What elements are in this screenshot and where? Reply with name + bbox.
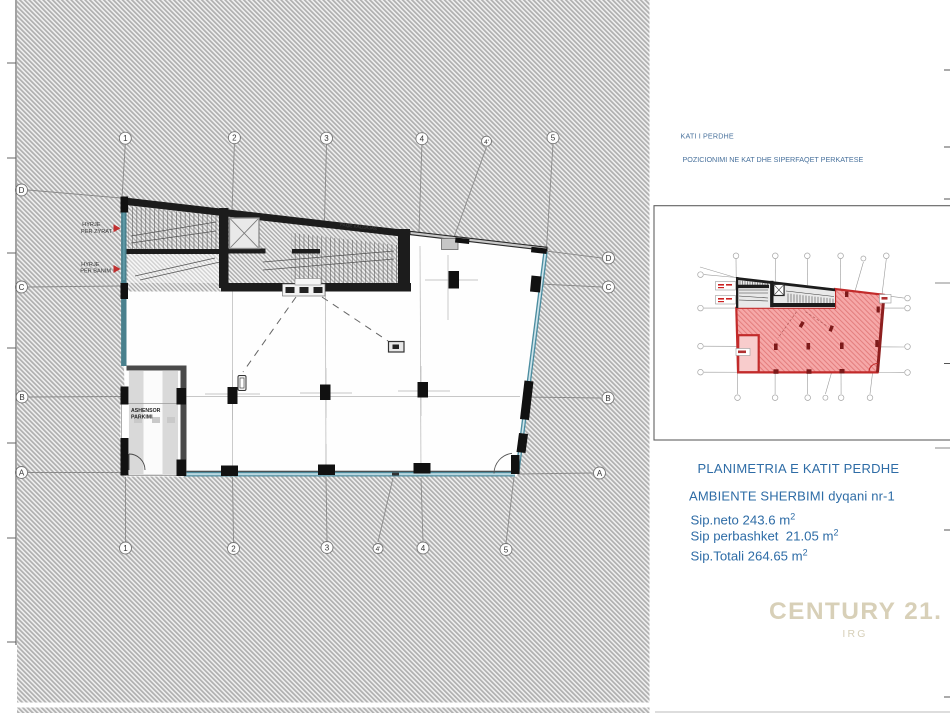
svg-text:PLANIMETRIA E KATIT PERDHE: PLANIMETRIA E KATIT PERDHE	[698, 461, 900, 476]
svg-text:Sip.neto 243.6 m2: Sip.neto 243.6 m2	[691, 512, 796, 528]
svg-text:4': 4'	[376, 546, 381, 553]
svg-text:ASHENSOR: ASHENSOR	[131, 408, 161, 414]
svg-text:5: 5	[504, 546, 509, 555]
svg-text:PER ZYRAT: PER ZYRAT	[81, 229, 113, 235]
svg-text:B: B	[19, 393, 24, 402]
svg-text:1: 1	[123, 134, 128, 143]
svg-text:A: A	[19, 469, 25, 478]
svg-text:4': 4'	[484, 139, 489, 146]
svg-text:Sip.Totali 264.65 m2: Sip.Totali 264.65 m2	[691, 548, 808, 564]
svg-text:HYRJE: HYRJE	[81, 262, 100, 268]
svg-text:IRG: IRG	[842, 628, 867, 640]
svg-text:C: C	[606, 283, 612, 292]
svg-text:3: 3	[325, 544, 330, 553]
svg-text:A: A	[597, 469, 603, 478]
svg-text:KATI I PERDHE: KATI I PERDHE	[681, 132, 734, 141]
svg-text:CENTURY 21.: CENTURY 21.	[769, 598, 942, 625]
svg-text:5: 5	[551, 134, 556, 143]
svg-text:1: 1	[123, 544, 128, 553]
svg-text:HYRJE: HYRJE	[82, 222, 101, 228]
svg-text:D: D	[606, 254, 612, 263]
svg-text:POZICIONIMI NE KAT DHE SIPERFA: POZICIONIMI NE KAT DHE SIPERFAQET PERKAT…	[683, 155, 864, 164]
svg-text:PARKIMI: PARKIMI	[131, 415, 153, 421]
svg-text:B: B	[605, 394, 610, 403]
svg-text:2: 2	[232, 134, 237, 143]
svg-text:2: 2	[231, 545, 236, 554]
svg-text:PER BANIM: PER BANIM	[80, 268, 111, 274]
svg-text:4: 4	[421, 544, 426, 553]
svg-text:Sip perbashket 21.05 m2: Sip perbashket 21.05 m2	[691, 528, 839, 544]
svg-text:D: D	[19, 186, 25, 195]
svg-text:4: 4	[420, 135, 425, 144]
svg-text:AMBIENTE SHERBIMI dyqani nr-1: AMBIENTE SHERBIMI dyqani nr-1	[689, 489, 895, 504]
svg-text:3: 3	[324, 134, 329, 143]
svg-text:C: C	[19, 283, 25, 292]
